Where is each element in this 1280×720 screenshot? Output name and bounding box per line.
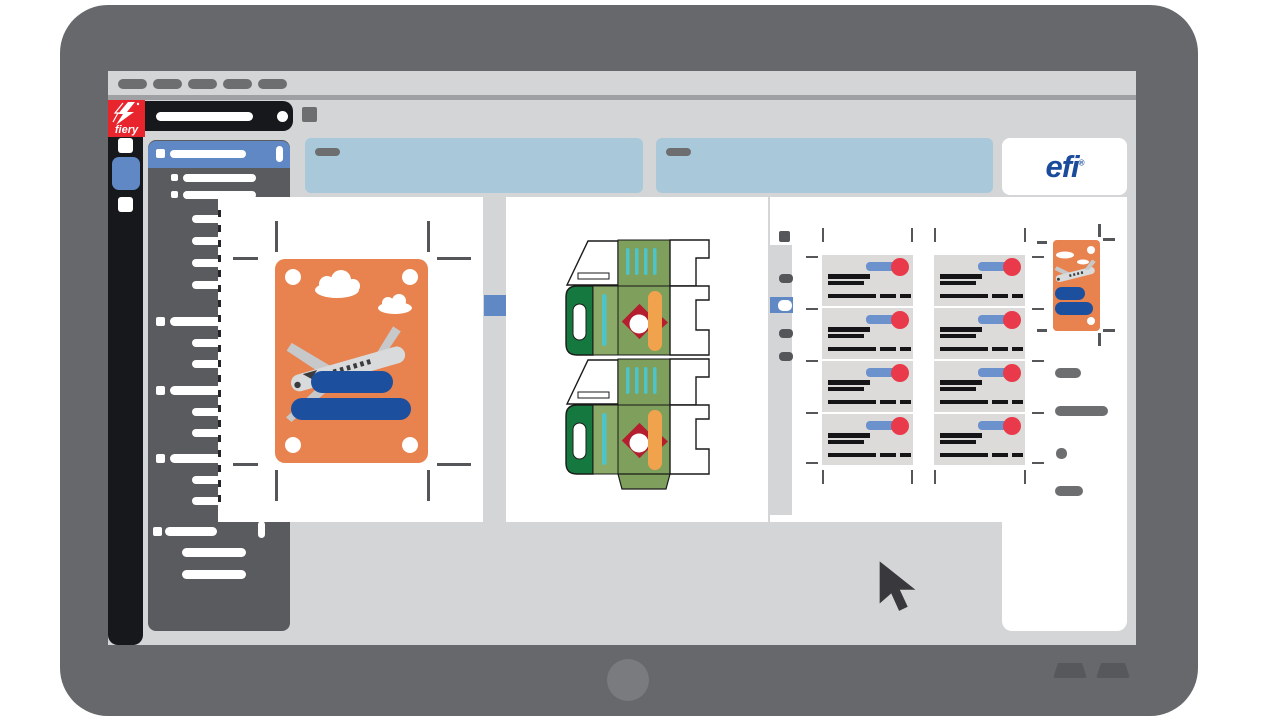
illustration-canvas: fiery efi® (0, 0, 1280, 720)
card-accent-dot (891, 258, 909, 276)
card-text-line (940, 440, 976, 444)
crop-mark (427, 470, 430, 501)
info-panel-right[interactable] (656, 138, 993, 193)
sidebar-item-bullet (171, 191, 178, 198)
card-text-line (828, 440, 864, 444)
sidebar-item-label-placeholder (182, 570, 246, 579)
menu-item[interactable] (223, 79, 252, 89)
business-card (822, 308, 913, 359)
crop-mark (1032, 256, 1044, 258)
card-text-line (828, 327, 870, 332)
card-dash (1012, 294, 1023, 298)
sidebar-item-bullet (156, 454, 165, 463)
crop-mark (806, 256, 818, 258)
card-accent-dot (1003, 364, 1021, 382)
card-text-line (828, 274, 870, 279)
carton-dieline-illustration (506, 197, 768, 522)
tablet-port-icon (1053, 663, 1087, 678)
sidebar-scroll-indicator (276, 146, 283, 162)
menu-item[interactable] (188, 79, 217, 89)
cards-grid (822, 255, 1027, 467)
card-accent-dot (891, 364, 909, 382)
fiery-logo-text: fiery (108, 124, 145, 136)
card-dash (900, 294, 911, 298)
card-accent-dot (891, 417, 909, 435)
card-dash (900, 400, 911, 404)
page-nav-item[interactable] (779, 274, 793, 283)
card-dash (940, 294, 988, 298)
window-title-placeholder (156, 112, 253, 121)
card-dash (900, 347, 911, 351)
crop-mark (1024, 470, 1026, 484)
crop-mark (806, 360, 818, 362)
card-dash (940, 400, 988, 404)
menubar (118, 79, 518, 89)
crop-mark (1037, 241, 1047, 244)
page-thumbnail[interactable] (1053, 240, 1100, 331)
card-dash (992, 453, 1008, 457)
crop-mark (437, 257, 471, 260)
card-text-line (940, 334, 976, 338)
business-card (934, 255, 1025, 306)
card-dash (880, 453, 896, 457)
card-text-line (940, 281, 976, 285)
crop-mark (1032, 412, 1044, 414)
crop-mark (1032, 462, 1044, 464)
crop-mark (1103, 329, 1115, 332)
crop-mark (233, 257, 258, 260)
card-dash (880, 400, 896, 404)
page-list-label-placeholder (1055, 406, 1108, 416)
window-title-bar (145, 101, 293, 131)
sidebar-item-groupScroll[interactable] (148, 527, 290, 539)
business-card (822, 255, 913, 306)
sidebar-item-label-placeholder (183, 174, 256, 182)
card-text-line (828, 281, 864, 285)
crop-mark (1103, 238, 1115, 241)
sidebar-item-bullet (156, 386, 165, 395)
crop-mark (437, 463, 471, 466)
registered-mark: ® (1079, 158, 1084, 167)
info-panel-label-placeholder (666, 148, 691, 156)
mouse-cursor-icon (876, 558, 920, 616)
crop-mark (911, 470, 913, 484)
info-panel-label-placeholder (315, 148, 340, 156)
sidebar-item-label-placeholder (170, 150, 246, 158)
sidebar-item-bullet (153, 527, 162, 536)
page-list-label-placeholder (1055, 368, 1081, 378)
titlebar-button[interactable] (277, 111, 288, 122)
business-card (822, 361, 913, 412)
toolbar-button-top[interactable] (118, 138, 133, 153)
card-dash (992, 294, 1008, 298)
crop-mark (806, 462, 818, 464)
business-card (934, 361, 1025, 412)
card-text-line (940, 327, 982, 332)
sidebar-item-wide[interactable] (148, 548, 290, 560)
sidebar-item-bullet (156, 149, 165, 158)
tablet-port-icon (1096, 663, 1130, 678)
menu-item[interactable] (258, 79, 287, 89)
home-button[interactable] (607, 659, 649, 701)
crop-mark (1098, 333, 1101, 346)
crop-mark (275, 221, 278, 252)
sidebar-item-wide[interactable] (148, 570, 290, 582)
crop-mark (1024, 228, 1026, 242)
sidebar-item-bullet (171, 174, 178, 181)
card-dash (992, 347, 1008, 351)
card-text-line (828, 334, 864, 338)
card-text-line (940, 380, 982, 385)
card-dash (1012, 453, 1023, 457)
card-dash (828, 400, 876, 404)
poster-text-placeholder (311, 371, 393, 393)
crop-mark (822, 470, 824, 484)
crop-mark (806, 412, 818, 414)
card-text-line (940, 433, 982, 438)
sidebar-item-child[interactable] (148, 174, 290, 186)
business-card (934, 308, 1025, 359)
card-dash (880, 347, 896, 351)
card-text-line (940, 274, 982, 279)
card-dash (828, 453, 876, 457)
crop-mark (1098, 224, 1101, 237)
info-panel-left[interactable] (305, 138, 643, 193)
menubar-divider (108, 95, 1136, 100)
card-dash (1012, 347, 1023, 351)
menu-item[interactable] (153, 79, 182, 89)
efi-logo-text: efi® (1045, 149, 1083, 185)
sheet-edge-perforation (218, 210, 221, 508)
page-nav-item[interactable] (779, 352, 793, 361)
crop-mark (934, 470, 936, 484)
toolbar-button-selected[interactable] (112, 157, 140, 190)
card-dash (992, 400, 1008, 404)
card-dash (1012, 400, 1023, 404)
toolbar-button-bottom[interactable] (118, 197, 133, 212)
business-card (822, 414, 913, 465)
page-nav-strip (770, 245, 792, 515)
card-dash (828, 347, 876, 351)
card-accent-dot (1003, 417, 1021, 435)
card-dash (880, 294, 896, 298)
crop-mark (934, 228, 936, 242)
efi-logo-card: efi® (1002, 138, 1127, 195)
card-dash (940, 347, 988, 351)
sidebar-item-label-placeholder (165, 527, 217, 536)
card-text-line (828, 387, 864, 391)
crop-mark (1032, 308, 1044, 310)
card-text-line (828, 433, 870, 438)
fiery-logo: fiery (108, 100, 145, 137)
window-control-button[interactable] (302, 107, 317, 122)
card-dash (900, 453, 911, 457)
crop-mark (806, 308, 818, 310)
page-nav-item[interactable] (779, 329, 793, 338)
panel-toggle-square[interactable] (779, 231, 790, 242)
sidebar-item-label-placeholder (182, 548, 246, 557)
card-dash (828, 294, 876, 298)
crop-mark (911, 228, 913, 242)
page-list-label-placeholder (1055, 486, 1083, 496)
sidebar-scroll-indicator (258, 521, 265, 538)
card-accent-dot (1003, 258, 1021, 276)
poster-text-placeholder (291, 398, 411, 420)
crop-mark (427, 221, 430, 252)
card-accent-dot (1003, 311, 1021, 329)
crop-mark (1037, 329, 1047, 332)
page-thumbnail-art (1053, 240, 1100, 331)
sidebar-item-bullet (156, 317, 165, 326)
page-nav-item-selected[interactable] (770, 297, 793, 313)
business-card (934, 414, 1025, 465)
poster-artwork (275, 259, 428, 463)
card-text-line (828, 380, 870, 385)
sidebar-item-selected[interactable] (148, 141, 290, 168)
scrollbar-handle[interactable] (484, 295, 506, 316)
card-accent-dot (891, 311, 909, 329)
page-list-label-placeholder (1056, 448, 1067, 459)
page-nav-selected-dot (778, 300, 792, 311)
crop-mark (233, 463, 258, 466)
airplane-illustration (275, 259, 428, 463)
menu-item[interactable] (118, 79, 147, 89)
card-dash (940, 453, 988, 457)
crop-mark (1032, 360, 1044, 362)
crop-mark (275, 470, 278, 501)
card-text-line (940, 387, 976, 391)
crop-mark (822, 228, 824, 242)
